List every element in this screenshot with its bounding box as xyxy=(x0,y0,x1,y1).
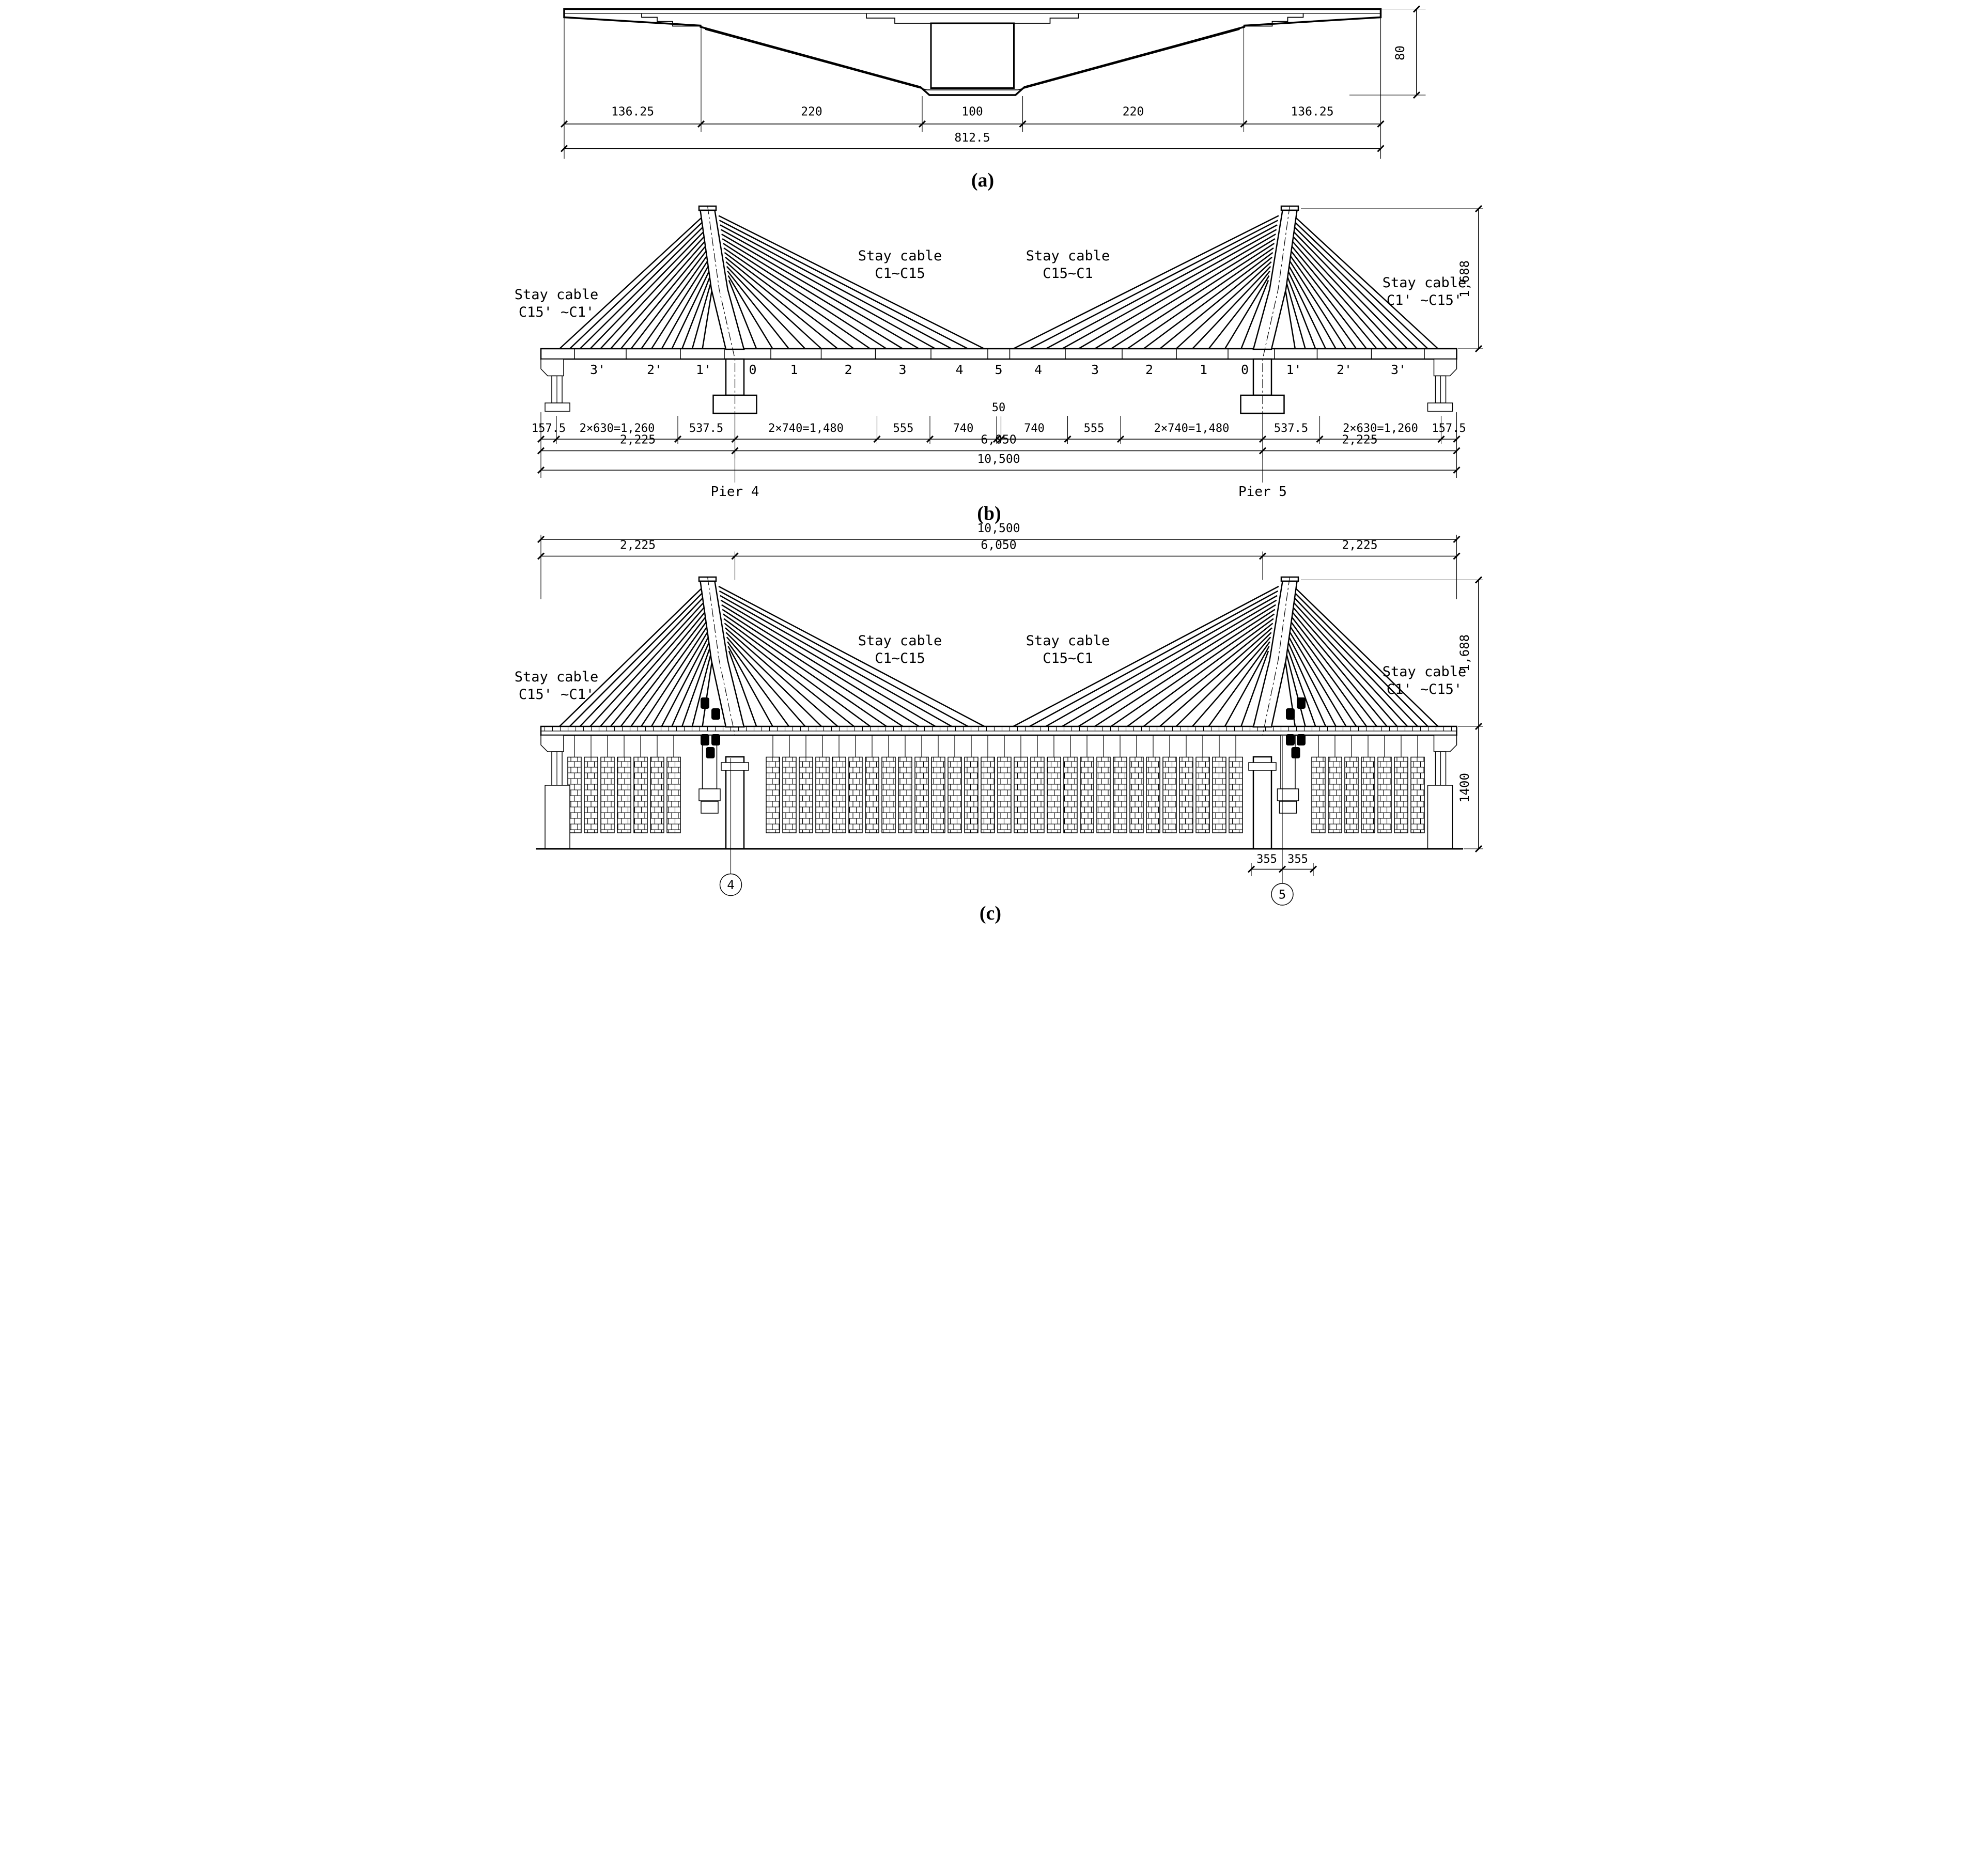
brick-falsework-column xyxy=(1229,757,1242,833)
pier-bubble-label: 4 xyxy=(727,878,734,892)
dim-total-label: 10,500 xyxy=(977,522,1020,535)
segment-label: 3' xyxy=(590,362,605,377)
stay-cable xyxy=(1045,225,1277,349)
dim-label: 740 xyxy=(1024,422,1045,435)
stay-cable xyxy=(682,271,712,349)
brick-falsework-column xyxy=(849,757,862,833)
stay-cable-label: Stay cable xyxy=(1383,275,1467,291)
brick-falsework-column xyxy=(1328,757,1342,833)
caption-c: (c) xyxy=(980,903,1001,924)
jack-block-right-c xyxy=(1278,789,1299,801)
stay-cable-label: C1~C15 xyxy=(875,650,925,666)
segment-labels-b: 3' 2' 1' 0 1 2 3 4 5 4 3 2 1 0 1' 2' 3' xyxy=(590,362,1406,377)
segment-label: 4 xyxy=(955,362,963,377)
brick-falsework-column xyxy=(965,757,978,833)
abutment-base-right-c xyxy=(1428,785,1453,849)
stay-cable-label: C1~C15 xyxy=(875,266,925,282)
deck-b xyxy=(541,349,1457,359)
pier-bubbles: 4 5 xyxy=(720,874,1294,906)
stay-cable-label: Stay cable xyxy=(1383,664,1467,680)
dim-label-50: 50 xyxy=(992,401,1006,414)
dim-label: 157.5 xyxy=(1432,422,1466,435)
stay-cable xyxy=(1288,253,1357,349)
brick-falsework-column xyxy=(1097,757,1110,833)
dim-label: 136.25 xyxy=(1291,105,1333,119)
figure-canvas: 136.25 220 100 220 136.25 812.5 80 (a) xyxy=(497,0,1491,925)
brick-falsework-column xyxy=(1064,757,1077,833)
pier-collar-left-c xyxy=(721,763,749,770)
pier-collar-right-c xyxy=(1249,763,1276,770)
stay-cable xyxy=(725,257,838,349)
dim-height-label: 1,688 xyxy=(1457,260,1472,298)
abutment-corbel-left-c xyxy=(541,735,564,752)
segment-label: 2' xyxy=(647,362,662,377)
pylon-mast-left-b xyxy=(701,210,744,349)
panel-b-elevation: 3' 2' 1' 0 1 2 3 4 5 4 3 2 1 0 1' 2' 3' … xyxy=(515,206,1472,524)
brick-falsework-column xyxy=(1047,757,1061,833)
dim-label: 355 xyxy=(1287,853,1308,866)
stay-cable xyxy=(719,216,985,350)
dim-total-label: 812.5 xyxy=(954,131,990,145)
segment-label: 2 xyxy=(1145,362,1153,377)
stay-cable xyxy=(1029,220,1278,349)
pylon-mast-right-b xyxy=(1253,210,1297,349)
abutment-base-left-c xyxy=(545,785,570,849)
panel-c-construction-elevation: Stay cable C15' ~C1' Stay cable C1~C15 S… xyxy=(515,522,1472,924)
brick-falsework-column xyxy=(931,757,945,833)
counterweight-block xyxy=(1297,734,1306,745)
stay-cable xyxy=(1013,216,1279,350)
brick-falsework-column xyxy=(1031,757,1044,833)
segment-label: 3' xyxy=(1391,362,1406,377)
pier-bubble-label: 5 xyxy=(1279,888,1286,902)
segment-label: 5 xyxy=(995,362,1002,377)
brick-falsework-column xyxy=(981,757,995,833)
girder-outline xyxy=(564,9,1381,96)
stay-cable-label: C15~C1 xyxy=(1043,266,1093,282)
brick-falsework-column xyxy=(816,757,829,833)
stay-cable xyxy=(724,619,871,727)
abutment-corbel-right-c xyxy=(1434,735,1457,752)
stay-cable xyxy=(1284,276,1305,349)
segment-label: 3 xyxy=(1091,362,1099,377)
segment-label: 1 xyxy=(1200,362,1207,377)
pier-label: Pier 4 xyxy=(711,484,759,500)
stay-cable-label: Stay cable xyxy=(858,248,942,264)
stay-cable xyxy=(1061,229,1276,349)
stay-cable xyxy=(724,248,871,349)
brick-falsework-column xyxy=(799,757,813,833)
stay-cable xyxy=(580,596,705,727)
dim-label: 537.5 xyxy=(1274,422,1308,435)
dim-label: 2,225 xyxy=(1342,433,1377,447)
caption-b: (b) xyxy=(977,503,1001,524)
stay-cable-label: Stay cable xyxy=(515,669,599,685)
brick-falsework-column xyxy=(1179,757,1193,833)
stay-cable xyxy=(661,632,710,727)
stay-cable xyxy=(725,628,838,727)
brick-falsework-column xyxy=(634,757,647,833)
stay-cable-label: C1' ~C15' xyxy=(1387,681,1462,697)
counterweight-block xyxy=(706,747,715,758)
stay-cable-label: C15~C1 xyxy=(1043,650,1093,666)
stay-cable xyxy=(1061,600,1276,727)
dim-label: 2,225 xyxy=(620,433,656,447)
brick-falsework-column xyxy=(1130,757,1143,833)
stay-cable xyxy=(720,225,953,349)
dim-label: 2×740=1,480 xyxy=(1154,422,1230,435)
abutment-corbel-left-b xyxy=(541,359,564,376)
dim-label: 220 xyxy=(1123,105,1144,119)
dim-label: 6,050 xyxy=(981,433,1016,447)
stay-cable xyxy=(1292,596,1418,727)
brick-falsework-column xyxy=(783,757,796,833)
stay-cable xyxy=(1159,628,1272,727)
segment-label: 3 xyxy=(898,362,906,377)
abutment-base-left-b xyxy=(545,403,570,411)
brick-falsework-column xyxy=(650,757,664,833)
dimension-labels-c: 10,500 2,225 6,050 2,225 1,688 1400 355 … xyxy=(620,522,1472,866)
dim-label: 2,225 xyxy=(1342,539,1377,552)
jack-block-left-c xyxy=(699,789,720,801)
brick-falsework-column xyxy=(766,757,780,833)
counterweight-block xyxy=(711,708,720,720)
segment-label: 1 xyxy=(790,362,798,377)
brick-falsework-column xyxy=(1361,757,1375,833)
brick-falsework-column xyxy=(1213,757,1226,833)
segment-label: 2' xyxy=(1337,362,1352,377)
dim-label: 6,050 xyxy=(981,539,1016,552)
stay-cables-b xyxy=(559,216,1439,350)
dim-label: 2×740=1,480 xyxy=(768,422,844,435)
stay-cable xyxy=(641,253,709,349)
stay-cable xyxy=(692,276,713,349)
stay-cable-label: C15' ~C1' xyxy=(519,687,594,703)
dim-label: 537.5 xyxy=(689,422,723,435)
stay-cable xyxy=(682,642,712,727)
stay-cable-label: Stay cable xyxy=(515,287,599,303)
brick-falsework-column xyxy=(832,757,846,833)
stay-cable xyxy=(1159,257,1272,349)
bridge-engineering-drawing: 136.25 220 100 220 136.25 812.5 80 (a) xyxy=(497,0,1491,925)
dim-height-label: 1,688 xyxy=(1457,634,1472,672)
stay-cable xyxy=(641,623,709,727)
brick-falsework-column xyxy=(1163,757,1176,833)
stay-cable-label: Stay cable xyxy=(858,633,942,649)
counterweight-block xyxy=(701,734,709,745)
stay-cable-label: C1' ~C15' xyxy=(1387,292,1462,308)
abutment-corbel-right-b xyxy=(1434,359,1457,376)
brick-falsework-column xyxy=(915,757,928,833)
brick-falsework-column xyxy=(898,757,912,833)
dim-label: 555 xyxy=(893,422,914,435)
dim-label: 220 xyxy=(801,105,822,119)
brick-falsework-column xyxy=(865,757,879,833)
dimension-labels-b: 157.5 2×630=1,260 537.5 2×740=1,480 555 … xyxy=(532,260,1472,500)
stay-cable-label: Stay cable xyxy=(1026,248,1110,264)
dim-label: 355 xyxy=(1256,853,1277,866)
brick-falsework-column xyxy=(617,757,631,833)
pylon-mast-right-c xyxy=(1253,581,1297,727)
stay-cable xyxy=(721,229,936,349)
brick-falsework-column xyxy=(948,757,961,833)
brick-falsework-column xyxy=(1312,757,1325,833)
stay-cable xyxy=(1288,623,1357,727)
brick-falsework-column xyxy=(882,757,895,833)
dim-total-label: 10,500 xyxy=(977,453,1020,466)
abutment-base-right-b xyxy=(1428,403,1453,411)
counterweight-block xyxy=(701,697,709,709)
segment-label: 2 xyxy=(844,362,852,377)
stay-cable xyxy=(1127,619,1273,727)
counterweight-block xyxy=(1292,747,1300,758)
brick-falsework-column xyxy=(601,757,614,833)
brick-falsework-column xyxy=(1378,757,1391,833)
brick-falsework-column xyxy=(1345,757,1358,833)
brick-falsework-column xyxy=(584,757,598,833)
dim-label: 740 xyxy=(953,422,974,435)
stay-cable xyxy=(1285,271,1316,349)
panel-a-cross-section: 136.25 220 100 220 136.25 812.5 80 (a) xyxy=(564,9,1407,192)
brick-falsework-column xyxy=(998,757,1011,833)
dim-label: 2,225 xyxy=(620,539,656,552)
dim-height-label: 80 xyxy=(1393,45,1407,60)
brick-falsework-column xyxy=(1146,757,1160,833)
stay-cable-label: Stay cable xyxy=(1026,633,1110,649)
stay-cable xyxy=(1127,248,1273,349)
jack-block-left-c xyxy=(701,801,718,813)
caption-a: (a) xyxy=(971,169,994,191)
dim-height-label: 1400 xyxy=(1457,773,1472,803)
brick-falsework-column xyxy=(1196,757,1209,833)
dim-label: 100 xyxy=(961,105,983,119)
stay-cable xyxy=(651,257,710,349)
stay-cables-c xyxy=(559,586,1439,727)
brick-falsework-column xyxy=(1394,757,1408,833)
dim-label: 136.25 xyxy=(611,105,654,119)
stay-cable-label: C15' ~C1' xyxy=(519,304,594,320)
segment-label: 1' xyxy=(1286,362,1301,377)
stay-cable xyxy=(1287,257,1346,349)
counterweight-block xyxy=(711,734,720,745)
brick-falsework-column xyxy=(1080,757,1094,833)
segment-label: 0 xyxy=(1241,362,1249,377)
brick-falsework-column xyxy=(1014,757,1028,833)
segment-label: 1' xyxy=(696,362,711,377)
stay-cable xyxy=(719,220,969,349)
pier-label: Pier 5 xyxy=(1238,484,1287,500)
counterweight-block xyxy=(1297,697,1306,709)
brick-falsework-column xyxy=(1411,757,1424,833)
counterweight-block xyxy=(1286,708,1295,720)
brick-falsework-column xyxy=(1113,757,1127,833)
dim-label: 555 xyxy=(1084,422,1105,435)
segment-label: 0 xyxy=(749,362,756,377)
brick-falsework-column xyxy=(667,757,680,833)
counterweight-block xyxy=(1286,734,1295,745)
dim-label: 157.5 xyxy=(532,422,566,435)
segment-label: 4 xyxy=(1034,362,1042,377)
